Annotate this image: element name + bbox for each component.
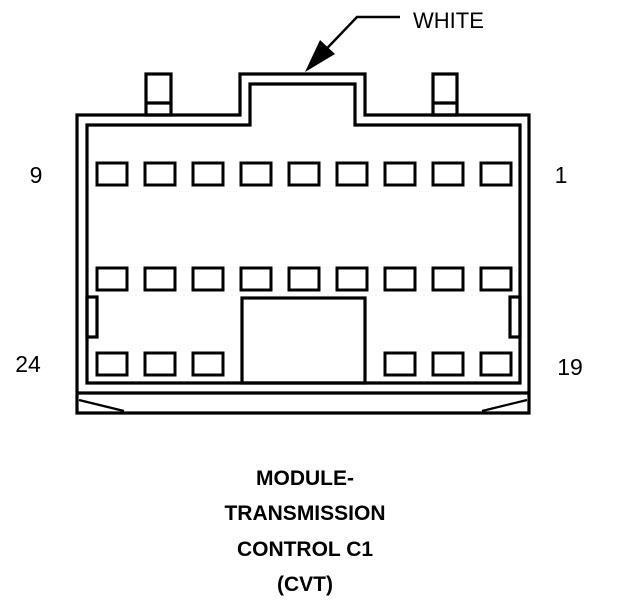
latch-right (433, 74, 457, 115)
bottom-chamfer-right (482, 400, 527, 411)
diagram-svg: WHITE 9 1 24 19 MODULE- TRANSMISSION CON… (0, 0, 624, 600)
pin-grid (97, 163, 511, 375)
pin-number-bottom-right: 19 (557, 354, 583, 380)
center-key-block (242, 298, 365, 383)
pin-cavity (433, 163, 463, 185)
pin-cavity (289, 268, 319, 290)
pin-cavity (481, 163, 511, 185)
caption-line-2: TRANSMISSION (224, 502, 385, 525)
callout-label-white: WHITE (413, 8, 484, 33)
pin-cavity (433, 353, 463, 375)
pin-cavity (481, 353, 511, 375)
pin-cavity (289, 163, 319, 185)
pin-cavity (241, 163, 271, 185)
pin-cavity (97, 163, 127, 185)
pin-cavity (145, 268, 175, 290)
side-notch-right (510, 297, 520, 337)
pin-cavity (385, 353, 415, 375)
pin-cavity (193, 353, 223, 375)
bottom-chamfer-left (79, 400, 124, 411)
pin-number-top-left: 9 (30, 162, 43, 188)
pin-cavity (337, 268, 367, 290)
leader-arrow (305, 17, 400, 72)
pin-number-top-right: 1 (555, 162, 568, 188)
pin-cavity (193, 268, 223, 290)
pin-cavity (193, 163, 223, 185)
connector-pinout-diagram: WHITE 9 1 24 19 MODULE- TRANSMISSION CON… (0, 0, 624, 600)
pin-cavity (145, 353, 175, 375)
pin-number-bottom-left: 24 (15, 351, 41, 377)
caption-line-4: (CVT) (277, 573, 333, 596)
pin-cavity (385, 163, 415, 185)
connector-inner-contour (87, 84, 520, 383)
caption: MODULE- TRANSMISSION CONTROL C1 (CVT) (224, 467, 385, 596)
pin-cavity (385, 268, 415, 290)
pin-cavity (97, 353, 127, 375)
caption-line-3: CONTROL C1 (237, 538, 373, 561)
pin-cavity (433, 268, 463, 290)
pin-cavity (241, 268, 271, 290)
pin-cavity (337, 163, 367, 185)
pin-cavity (145, 163, 175, 185)
latch-left (146, 74, 171, 115)
pin-cavity (481, 268, 511, 290)
pin-cavity (97, 268, 127, 290)
caption-line-1: MODULE- (256, 467, 354, 490)
side-notch-left (87, 297, 97, 337)
